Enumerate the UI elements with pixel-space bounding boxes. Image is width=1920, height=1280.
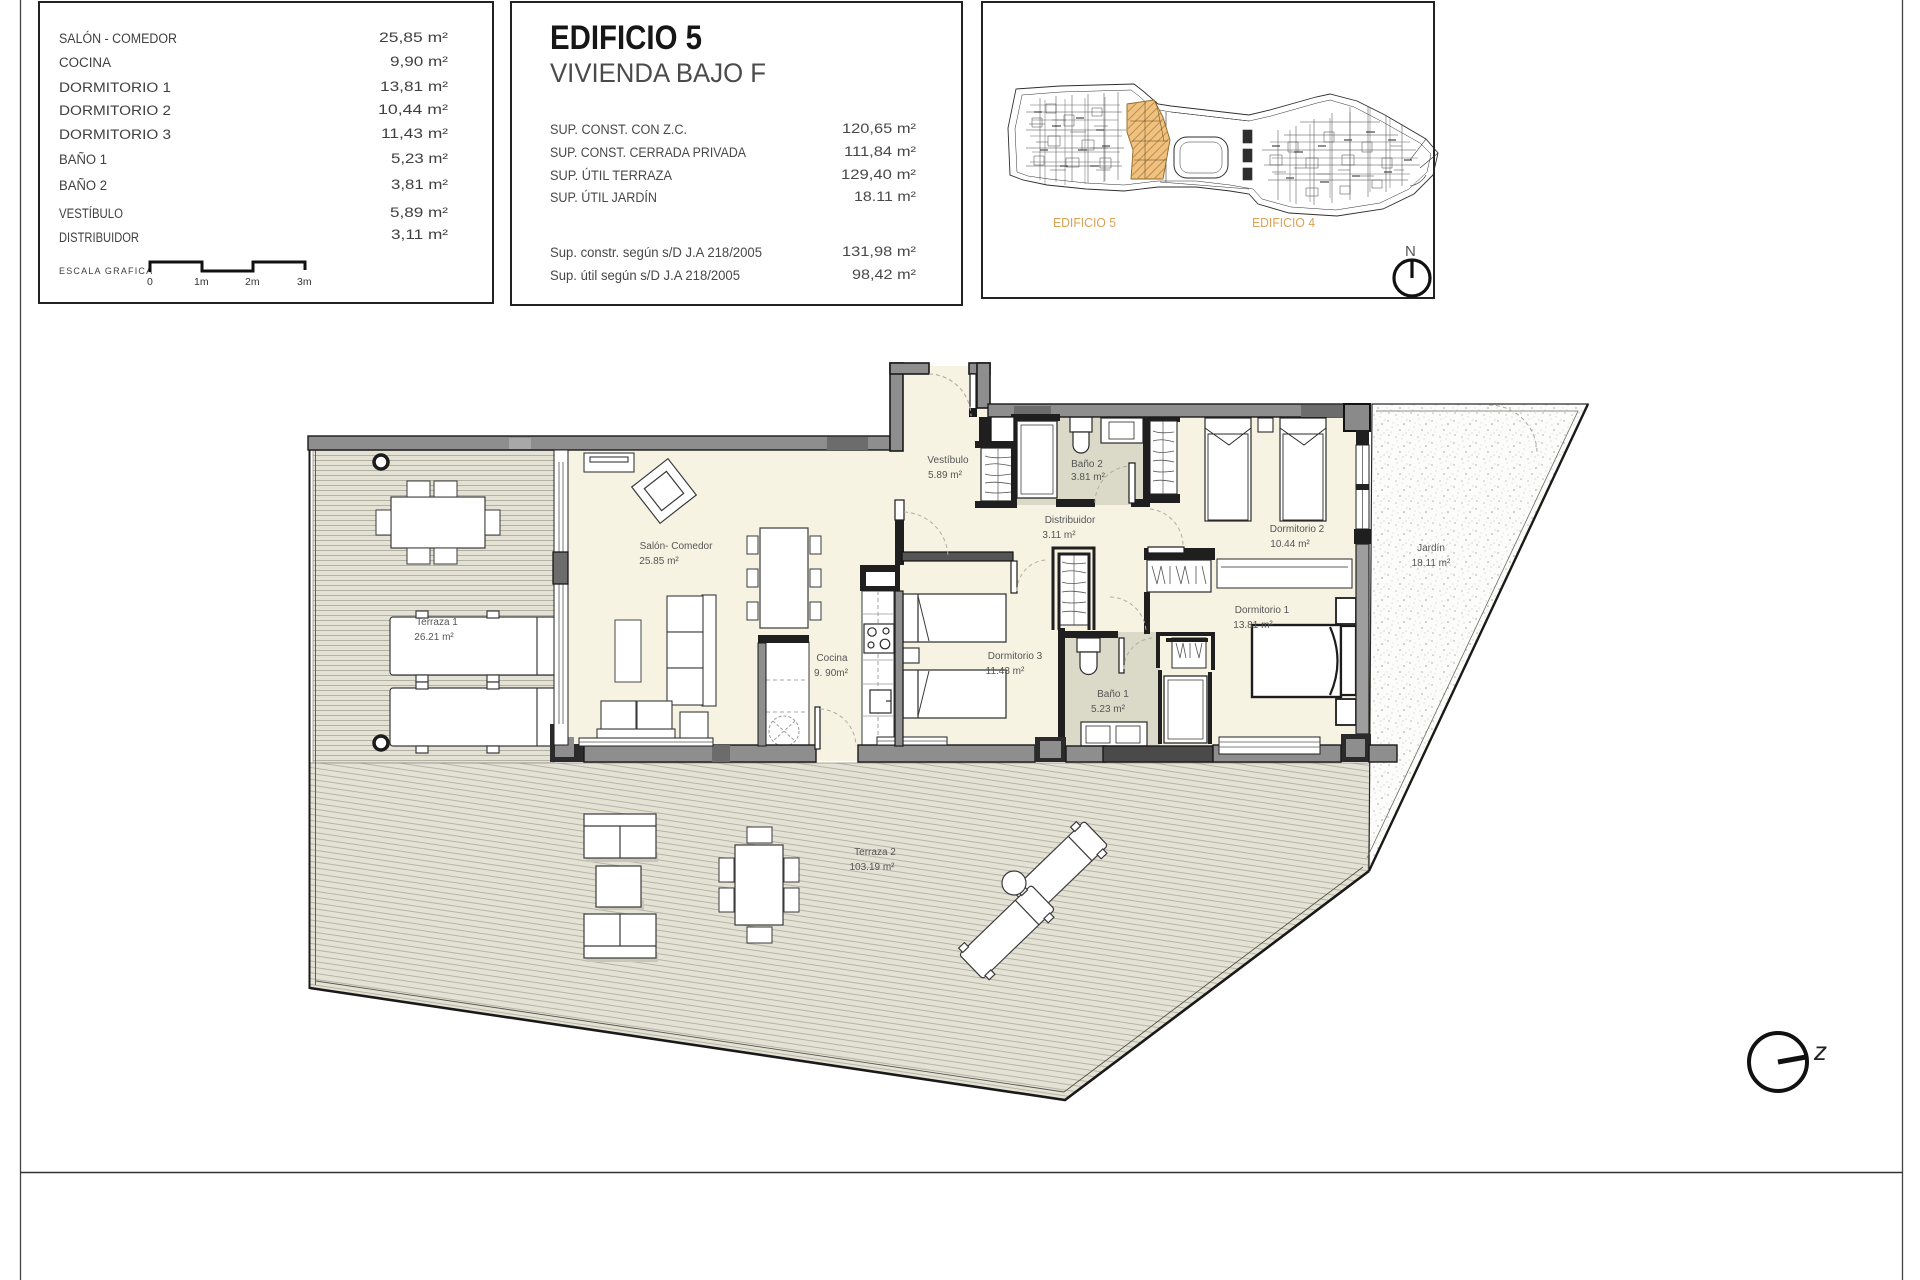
svg-text:SUP. ÚTIL JARDÍN: SUP. ÚTIL JARDÍN [550, 190, 657, 205]
svg-text:Baño 2: Baño 2 [1071, 459, 1103, 470]
svg-text:2m: 2m [245, 276, 260, 288]
svg-text:z: z [1813, 1036, 1827, 1066]
svg-text:1m: 1m [194, 276, 209, 288]
svg-text:11.43 m²: 11.43 m² [986, 666, 1025, 677]
svg-text:25,85 m²: 25,85 m² [379, 30, 449, 45]
svg-text:5.89 m²: 5.89 m² [928, 470, 963, 481]
svg-text:DORMITORIO 2: DORMITORIO 2 [59, 103, 171, 118]
svg-text:5,23 m²: 5,23 m² [391, 151, 449, 166]
svg-text:98,42 m²: 98,42 m² [852, 267, 917, 282]
svg-text:SUP. CONST. CON Z.C.: SUP. CONST. CON Z.C. [550, 122, 687, 137]
svg-text:3.11 m²: 3.11 m² [1042, 530, 1076, 541]
svg-text:5.23 m²: 5.23 m² [1091, 704, 1126, 715]
svg-text:Distribuidor: Distribuidor [1045, 515, 1096, 526]
svg-text:18.11 m²: 18.11 m² [854, 189, 917, 204]
svg-text:BAÑO 1: BAÑO 1 [59, 152, 107, 167]
svg-text:DORMITORIO 3: DORMITORIO 3 [59, 127, 171, 142]
svg-text:Dormitorio 1: Dormitorio 1 [1235, 605, 1290, 616]
svg-text:DISTRIBUIDOR: DISTRIBUIDOR [59, 230, 139, 245]
svg-text:ESCALA GRAFICA: ESCALA GRAFICA [59, 266, 153, 276]
svg-text:3.81 m²: 3.81 m² [1071, 472, 1106, 483]
svg-text:BAÑO 2: BAÑO 2 [59, 178, 107, 193]
svg-text:Jardín: Jardín [1417, 543, 1445, 554]
svg-text:13,81 m²: 13,81 m² [380, 79, 449, 94]
svg-text:DORMITORIO 1: DORMITORIO 1 [59, 80, 171, 95]
svg-text:13.81 m²: 13.81 m² [1233, 620, 1273, 631]
svg-text:9. 90m²: 9. 90m² [814, 668, 849, 679]
svg-text:3,11 m²: 3,11 m² [391, 227, 449, 242]
svg-text:Sup. útil según s/D J.A 218/20: Sup. útil según s/D J.A 218/2005 [550, 268, 740, 283]
svg-text:EDIFICIO 4: EDIFICIO 4 [1252, 215, 1315, 230]
svg-text:Salón- Comedor: Salón- Comedor [640, 541, 713, 552]
svg-text:COCINA: COCINA [59, 55, 111, 70]
svg-text:Terraza 1: Terraza 1 [416, 617, 458, 628]
svg-text:120,65 m²: 120,65 m² [842, 121, 917, 136]
svg-text:10,44 m²: 10,44 m² [378, 102, 449, 117]
svg-text:9,90 m²: 9,90 m² [390, 54, 449, 69]
svg-text:Terraza 2: Terraza 2 [854, 847, 896, 858]
svg-text:3m: 3m [297, 276, 312, 288]
svg-text:129,40 m²: 129,40 m² [841, 167, 917, 182]
svg-text:EDIFICIO 5: EDIFICIO 5 [550, 19, 702, 57]
svg-text:131,98 m²: 131,98 m² [842, 244, 917, 259]
svg-text:3,81 m²: 3,81 m² [391, 177, 449, 192]
svg-text:VIVIENDA BAJO F: VIVIENDA BAJO F [550, 58, 766, 88]
svg-text:111,84 m²: 111,84 m² [844, 144, 917, 159]
svg-text:25.85 m²: 25.85 m² [639, 556, 679, 567]
svg-text:SALÓN - COMEDOR: SALÓN - COMEDOR [59, 31, 177, 46]
svg-text:26.21 m²: 26.21 m² [414, 632, 454, 643]
svg-text:Vestíbulo: Vestíbulo [927, 455, 969, 466]
svg-text:SUP. ÚTIL TERRAZA: SUP. ÚTIL TERRAZA [550, 168, 672, 183]
svg-text:5,89 m²: 5,89 m² [390, 205, 449, 220]
svg-text:Baño 1: Baño 1 [1097, 689, 1129, 700]
svg-text:18.11 m²: 18.11 m² [1412, 558, 1451, 569]
svg-text:Dormitorio 3: Dormitorio 3 [988, 651, 1043, 662]
svg-text:Dormitorio 2: Dormitorio 2 [1270, 524, 1325, 535]
svg-text:VESTÍBULO: VESTÍBULO [59, 206, 123, 221]
svg-text:SUP. CONST. CERRADA PRIVADA: SUP. CONST. CERRADA PRIVADA [550, 145, 746, 160]
svg-text:Sup. constr. según s/D J.A 218: Sup. constr. según s/D J.A 218/2005 [550, 245, 762, 260]
svg-text:103.19 m²: 103.19 m² [849, 862, 895, 873]
svg-text:0: 0 [147, 276, 153, 288]
svg-text:N: N [1405, 243, 1416, 260]
svg-text:11,43 m²: 11,43 m² [381, 126, 449, 141]
svg-text:EDIFICIO 5: EDIFICIO 5 [1053, 215, 1116, 230]
svg-text:10.44 m²: 10.44 m² [1270, 539, 1310, 550]
svg-text:Cocina: Cocina [816, 653, 848, 664]
